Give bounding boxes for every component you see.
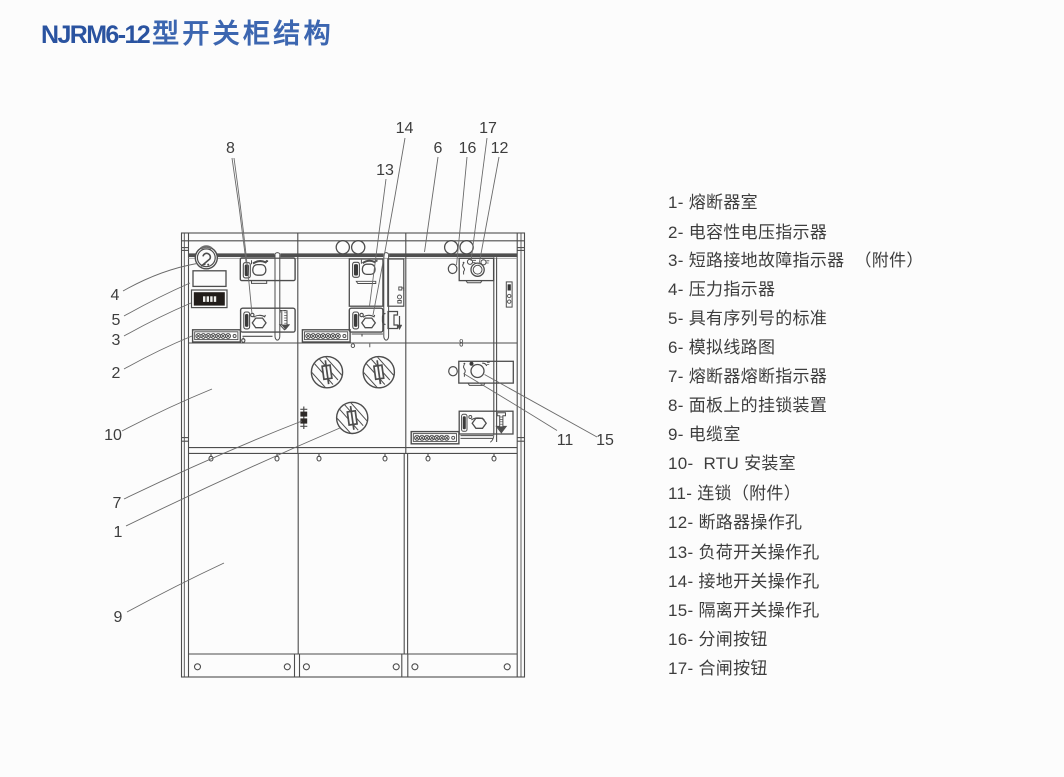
svg-text:9: 9 — [114, 609, 123, 626]
svg-text:7: 7 — [113, 495, 122, 512]
svg-text:16: 16 — [459, 140, 477, 157]
svg-text:2: 2 — [112, 365, 121, 382]
svg-text:17: 17 — [479, 120, 497, 137]
svg-text:5: 5 — [112, 312, 121, 329]
svg-text:14: 14 — [396, 120, 414, 137]
svg-text:15: 15 — [596, 432, 614, 449]
svg-text:8: 8 — [226, 140, 235, 157]
svg-text:6: 6 — [434, 140, 443, 157]
svg-text:13: 13 — [376, 162, 394, 179]
svg-text:4: 4 — [111, 287, 120, 304]
svg-text:11: 11 — [557, 432, 574, 449]
svg-text:10: 10 — [104, 427, 122, 444]
svg-text:1: 1 — [114, 524, 123, 541]
svg-text:12: 12 — [491, 140, 509, 157]
svg-text:3: 3 — [112, 332, 121, 349]
